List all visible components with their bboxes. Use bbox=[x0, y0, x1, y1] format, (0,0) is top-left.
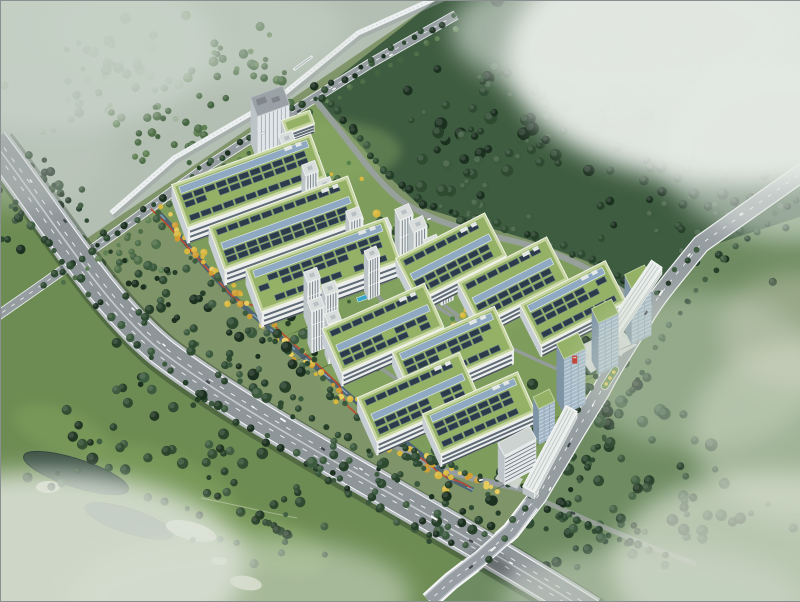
aerial-rendering bbox=[1, 1, 800, 601]
aerial-site-rendering-image bbox=[0, 0, 800, 602]
